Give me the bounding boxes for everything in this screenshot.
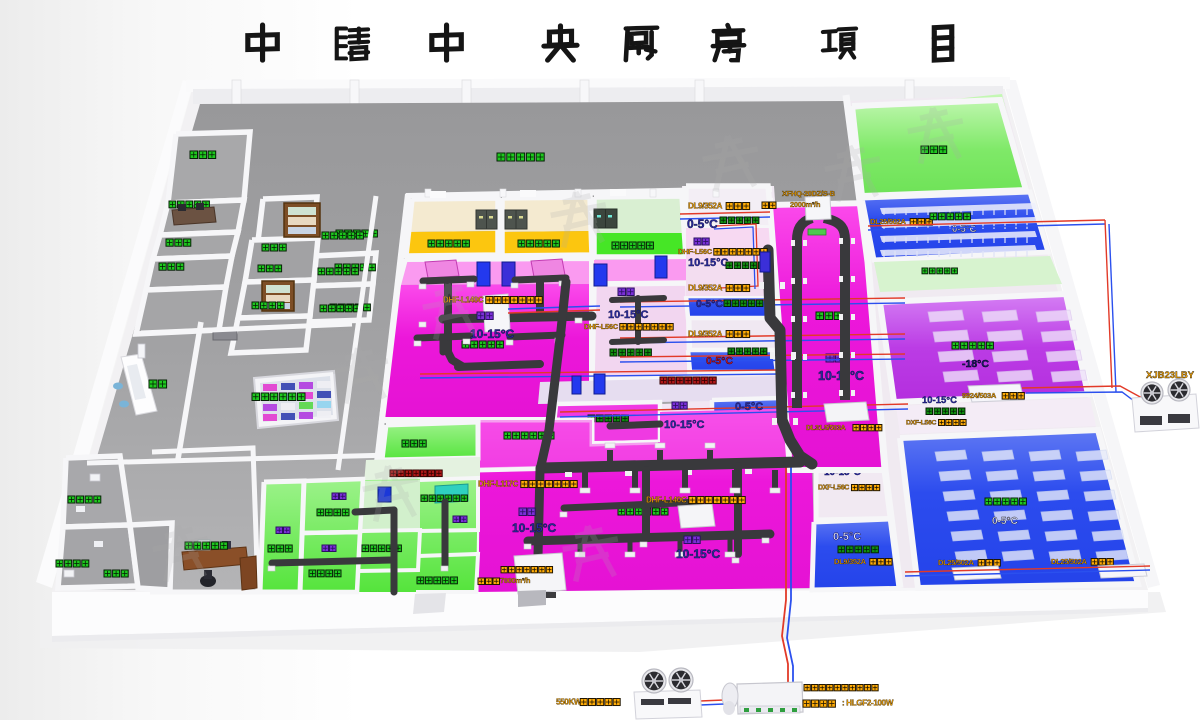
svg-text:0-5°C: 0-5°C bbox=[952, 224, 977, 235]
svg-text:DXF-L56C: DXF-L56C bbox=[906, 420, 936, 427]
svg-text:DL9/352A: DL9/352A bbox=[834, 557, 867, 566]
svg-text:DL9/352A: DL9/352A bbox=[688, 284, 723, 293]
svg-text:10-15°C: 10-15°C bbox=[676, 547, 720, 561]
svg-text:XJB23LBY: XJB23LBY bbox=[1146, 370, 1195, 381]
svg-text:XFHQ-20DZ/S-B: XFHQ-20DZ/S-B bbox=[782, 189, 836, 198]
svg-text:DL9/352A: DL9/352A bbox=[688, 202, 723, 211]
svg-text:DL25/502A: DL25/502A bbox=[1051, 557, 1088, 566]
svg-text:DXF-L56C: DXF-L56C bbox=[818, 485, 849, 492]
svg-text:10-15°C: 10-15°C bbox=[608, 309, 649, 321]
svg-text:2000m³/h: 2000m³/h bbox=[790, 200, 821, 209]
svg-text:0-5°C: 0-5°C bbox=[687, 217, 718, 231]
svg-text:10-15°C: 10-15°C bbox=[664, 419, 705, 431]
svg-text:DL31.5/503A: DL31.5/503A bbox=[806, 423, 846, 432]
svg-text:0-5°C: 0-5°C bbox=[696, 298, 723, 310]
svg-text:10-15°C: 10-15°C bbox=[470, 327, 514, 341]
svg-text:0-5°C: 0-5°C bbox=[735, 401, 763, 413]
svg-text:10-15°C: 10-15°C bbox=[922, 395, 957, 406]
svg-text:10-15°C: 10-15°C bbox=[512, 521, 556, 535]
svg-text:DL25/502A: DL25/502A bbox=[938, 558, 975, 567]
svg-text:-18°C: -18°C bbox=[962, 358, 989, 370]
svg-text:DHF-L56C: DHF-L56C bbox=[584, 322, 619, 331]
svg-text:550KW: 550KW bbox=[556, 698, 582, 707]
svg-text:0-5°C: 0-5°C bbox=[833, 531, 861, 543]
svg-text:DHF-L140C: DHF-L140C bbox=[646, 496, 687, 505]
svg-text:DHF-L56C: DHF-L56C bbox=[678, 247, 713, 256]
svg-text:0-5°C: 0-5°C bbox=[992, 516, 1018, 527]
svg-text:7000m³/h: 7000m³/h bbox=[500, 576, 531, 585]
svg-text:10-15°C: 10-15°C bbox=[688, 257, 729, 269]
svg-text:: HLGF2-100W: : HLGF2-100W bbox=[842, 699, 894, 708]
svg-text:DHF-L117C: DHF-L117C bbox=[478, 480, 518, 489]
svg-text:9924/503A: 9924/503A bbox=[962, 391, 997, 400]
svg-text:0-5°C: 0-5°C bbox=[706, 355, 733, 367]
svg-text:DL9/352A: DL9/352A bbox=[688, 330, 723, 339]
